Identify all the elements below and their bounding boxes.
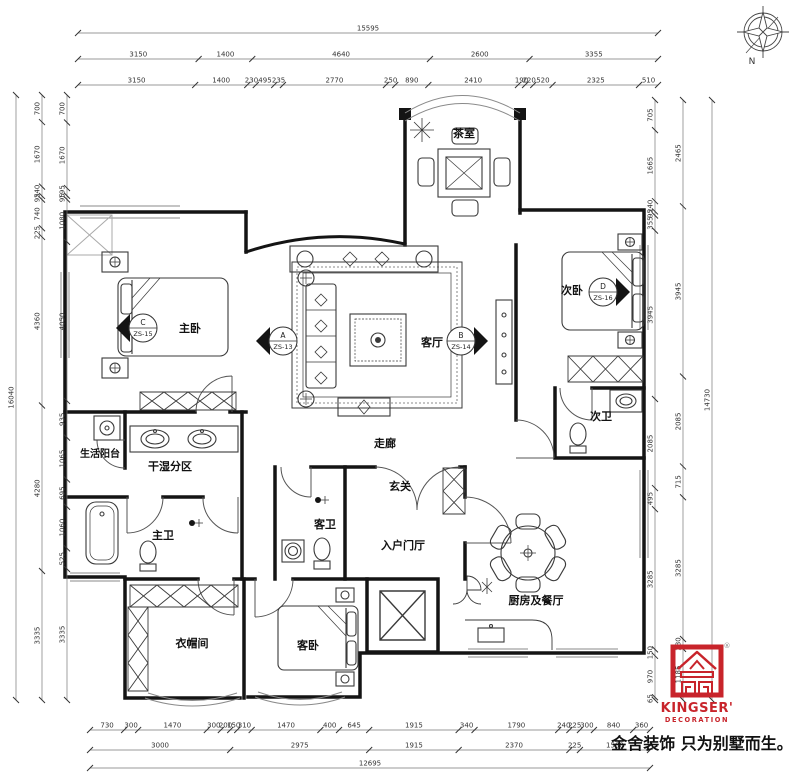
room-label-entry-hall: 入户门厅 (381, 538, 425, 552)
brand-division: DECORATION (665, 716, 729, 724)
dim-value: 1400 (217, 51, 235, 59)
dim-value: 360 (635, 722, 648, 730)
dim-value: 740 (34, 207, 42, 220)
master-bath-fixtures (86, 502, 203, 571)
dim-value: 1400 (212, 77, 230, 85)
double-basin (130, 426, 238, 452)
dim-value: 4640 (332, 51, 350, 59)
dim-value: 150 (647, 646, 655, 659)
room-label-kitchen-dining: 厨房及餐厅 (509, 593, 564, 607)
dim-value: 230 (245, 77, 258, 85)
dim-value: 1665 (647, 157, 655, 175)
dim-value: 510 (642, 77, 655, 85)
svg-text:C: C (140, 318, 145, 327)
dim-value: 2325 (587, 77, 605, 85)
dim-chain: 700167024095740225436042803335 (34, 92, 46, 703)
dim-value: 3355 (585, 51, 603, 59)
dim-value: 2465 (675, 144, 683, 162)
dim-value: 400 (323, 722, 336, 730)
elevation-marker-b: B ZS-14 (447, 327, 488, 355)
dim-value: 3285 (675, 559, 683, 577)
dim-value: 1060 (59, 519, 67, 537)
elevation-markers: A ZS-13 B ZS-14 C ZS-15 D ZS-16 (116, 278, 630, 355)
dim-value: 1080 (59, 212, 67, 230)
svg-text:ZS-15: ZS-15 (133, 330, 152, 338)
room-label-tea-room: 茶室 (452, 126, 475, 140)
dim-value: 4280 (34, 479, 42, 497)
dim-value: 1790 (507, 722, 525, 730)
dim-value: 2975 (291, 742, 309, 750)
dim-value: 12695 (359, 760, 381, 768)
dim-value: 355 (647, 216, 655, 229)
registered-mark: ® (724, 642, 731, 650)
room-label-corridor: 走廊 (373, 436, 396, 450)
dim-value: 495 (647, 492, 655, 505)
dim-value: 250 (384, 77, 397, 85)
room-label-service-balcony: 生活阳台 (80, 447, 120, 460)
dim-value: 890 (405, 77, 418, 85)
dim-value: 2770 (326, 77, 344, 85)
elevation-marker-a: A ZS-13 (256, 327, 297, 355)
room-label-living-room: 客厅 (420, 335, 443, 349)
room-label-master-bath: 主卫 (152, 528, 174, 542)
dim-value: 715 (675, 475, 683, 488)
elevation-marker-d: D ZS-16 (589, 278, 630, 306)
kingser-logo: ® KINGSER' DECORATION 金舍装饰 只为别墅而生。 (610, 642, 793, 753)
dim-value: 700 (59, 102, 67, 115)
room-label-wet-dry: 干湿分区 (148, 459, 192, 473)
master-bed (102, 252, 228, 378)
dim-value: 14730 (704, 389, 712, 411)
dim-value: 1470 (277, 722, 295, 730)
dim-value: 340 (460, 722, 473, 730)
brand-tagline: 金舍装饰 只为别墅而生。 (610, 734, 793, 753)
dim-value: 3000 (151, 742, 169, 750)
dim-value: 4050 (59, 312, 67, 330)
dim-value: 1065 (59, 450, 67, 468)
dim-chain: 30002975191523702251500 (87, 742, 653, 754)
svg-text:A: A (280, 331, 286, 340)
compass-north-label: N (749, 57, 756, 67)
guest-bed (278, 588, 358, 686)
dim-value: 16040 (8, 386, 16, 408)
dim-chain: 14730 (704, 97, 716, 703)
elevation-marker-c: C ZS-15 (116, 314, 157, 342)
floor-plan-page: 茶室 主卧 客厅 次卧 走廊 玄关 入户门厅 客卫 主卫 次卫 干湿分区 生活阳… (0, 0, 800, 776)
guest-bath-fixtures (282, 496, 330, 569)
floor-plan-svg: 茶室 主卧 客厅 次卧 走廊 玄关 入户门厅 客卫 主卫 次卫 干湿分区 生活阳… (0, 0, 800, 776)
windows (61, 96, 648, 707)
dim-value: 525 (59, 552, 67, 565)
svg-text:ZS-16: ZS-16 (593, 294, 612, 302)
dim-value: 840 (607, 722, 620, 730)
room-label-guest-bedroom: 客卧 (296, 638, 319, 652)
dim-value: 4360 (34, 312, 42, 330)
dim-chain: 12695 (87, 760, 653, 772)
dim-chain: 7303001470300200150310147040064519153401… (87, 722, 653, 734)
svg-text:ZS-14: ZS-14 (451, 343, 470, 351)
dim-chain: 3150140023049523527702508902410190220520… (75, 77, 661, 89)
room-label-master-bedroom: 主卧 (179, 321, 201, 335)
dim-value: 2600 (471, 51, 489, 59)
svg-text:D: D (600, 282, 606, 291)
dim-value: 970 (647, 670, 655, 683)
dim-chain: 70516652409535539452085495328515097065 (647, 97, 659, 703)
dim-value: 700 (34, 102, 42, 115)
dim-value: 1915 (405, 742, 423, 750)
dim-value: 2370 (505, 742, 523, 750)
dim-value: 695 (59, 486, 67, 499)
brand-name: KINGSER' (661, 701, 734, 716)
dim-chain: 31501400464026003355 (75, 51, 661, 63)
dim-value: 1915 (405, 722, 423, 730)
dim-value: 3285 (647, 570, 655, 588)
dim-chain: 15595 (75, 25, 661, 37)
plant-icon (410, 118, 434, 142)
dim-value: 3335 (34, 627, 42, 645)
compass: N (737, 6, 789, 67)
svg-text:B: B (458, 331, 463, 340)
dim-value: 15595 (357, 25, 379, 33)
dim-value: 220 (522, 77, 535, 85)
dim-value: 3945 (647, 306, 655, 324)
room-label-cloakroom: 衣帽间 (176, 636, 209, 650)
svg-text:ZS-13: ZS-13 (273, 343, 292, 351)
dining-set (453, 514, 568, 650)
dim-value: 3335 (59, 626, 67, 644)
dim-value: 2085 (675, 413, 683, 431)
room-label-entrance: 玄关 (389, 479, 411, 493)
plant-icon (482, 578, 492, 594)
dim-chain: 16040 (8, 92, 20, 703)
dim-value: 2085 (647, 435, 655, 453)
dim-value: 645 (347, 722, 360, 730)
kingser-logo-mark (673, 647, 721, 696)
living-room-set (290, 246, 512, 416)
dim-value: 520 (536, 77, 549, 85)
washing-machine (94, 416, 120, 440)
dim-value: 935 (59, 413, 67, 426)
dim-value: 3150 (128, 77, 146, 85)
dim-value: 235 (272, 77, 285, 85)
dim-value: 300 (580, 722, 593, 730)
room-label-second-bedroom: 次卧 (561, 283, 583, 297)
dim-value: 1470 (164, 722, 182, 730)
dim-value: 705 (647, 108, 655, 121)
dim-value: 730 (100, 722, 113, 730)
dim-value: 495 (258, 77, 271, 85)
dim-value: 3945 (675, 282, 683, 300)
walls (65, 108, 644, 698)
dim-chain: 24653945208571532852301185 (675, 97, 687, 703)
room-label-guest-bath: 客卫 (313, 517, 336, 531)
dim-value: 1670 (34, 145, 42, 163)
dim-value: 1670 (59, 146, 67, 164)
dim-value: 225 (34, 226, 42, 239)
dim-value: 3150 (129, 51, 147, 59)
room-label-second-bath: 次卫 (590, 409, 612, 423)
dim-value: 2410 (464, 77, 482, 85)
dim-value: 300 (124, 722, 137, 730)
dim-value: 225 (568, 742, 581, 750)
dim-value: 310 (238, 722, 251, 730)
